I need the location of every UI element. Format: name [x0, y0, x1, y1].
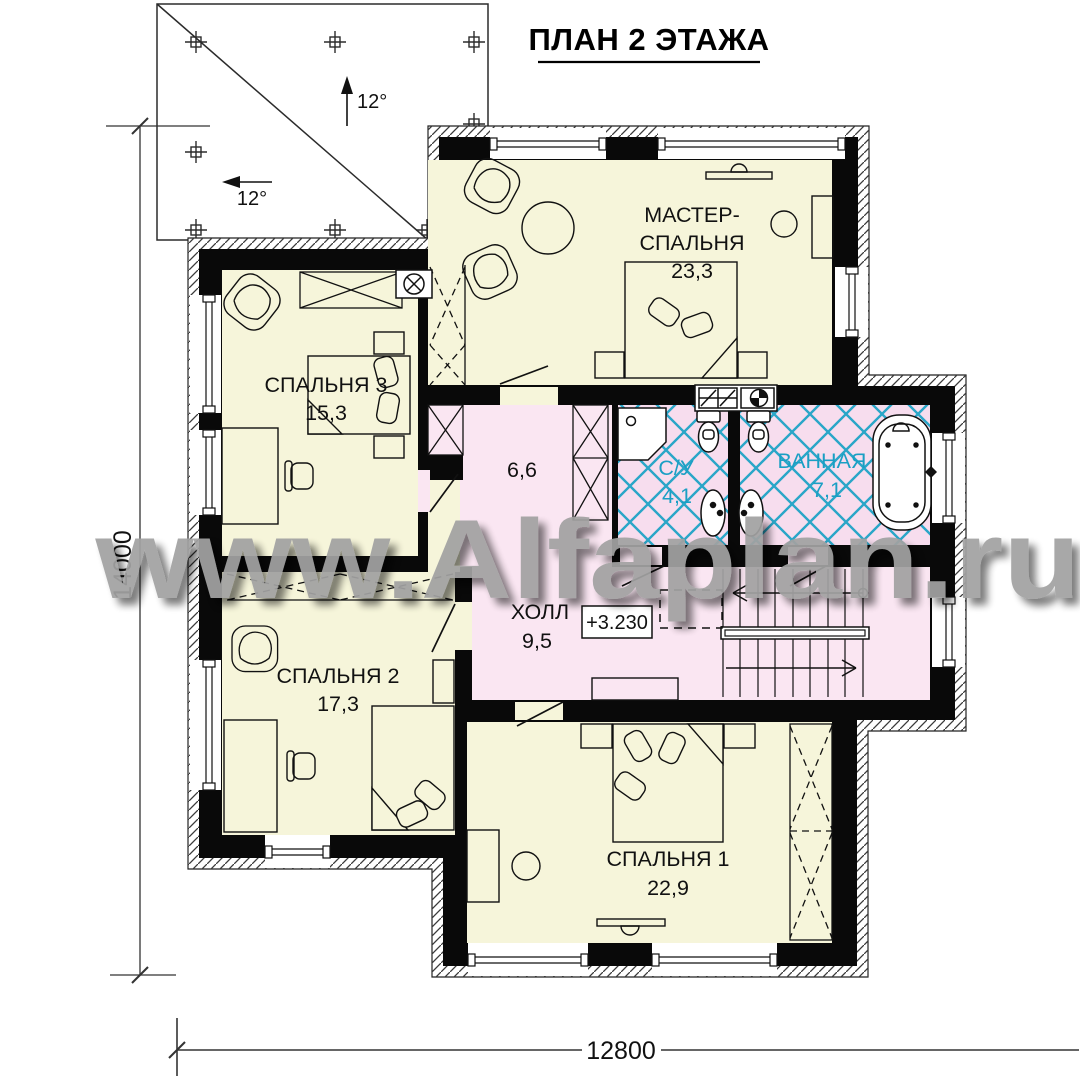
- roof-slope-arrow-up: [341, 76, 353, 126]
- drawing-title: ПЛАН 2 ЭТАЖА: [528, 22, 769, 62]
- floor-plan-page: 12° 12° 14000 12800: [0, 0, 1080, 1080]
- bedroom1-area: 22,9: [647, 876, 689, 900]
- roof-slope-label-left: 12°: [237, 188, 267, 210]
- roof-slope-label-up: 12°: [357, 91, 387, 113]
- master-door-opening: [500, 387, 558, 405]
- room-master-floor: [428, 160, 832, 385]
- master-area: 23,3: [671, 259, 713, 283]
- ventilation-shaft-icon: [695, 385, 777, 411]
- bedroom1-door-opening: [515, 702, 563, 720]
- master-label-line1: МАСТЕР-: [644, 203, 740, 227]
- stair-handrail: [721, 627, 869, 639]
- bedroom2-area: 17,3: [317, 692, 359, 716]
- bedroom1-label: СПАЛЬНЯ 1: [607, 847, 730, 871]
- roof-ridge-line: [157, 4, 428, 240]
- bedroom3-area: 15,3: [305, 401, 347, 425]
- toilet-icon: [747, 411, 770, 452]
- floor-plan-drawing: 12° 12° 14000 12800: [0, 0, 1080, 1080]
- bedroom2-label: СПАЛЬНЯ 2: [277, 664, 400, 688]
- wc-label: С/У: [658, 456, 694, 480]
- toilet-icon: [697, 411, 720, 452]
- bath-label: ВАННАЯ: [778, 449, 867, 473]
- corridor-area: 6,6: [507, 458, 537, 482]
- chimney-vent-icon: [396, 270, 432, 298]
- page-title: ПЛАН 2 ЭТАЖА: [528, 22, 769, 57]
- roof-slope-arrow-left: [222, 176, 272, 188]
- hall-area: 9,5: [522, 629, 552, 653]
- watermark: www.Alfaplan.ru: [94, 497, 1080, 622]
- master-label-line2: СПАЛЬНЯ: [639, 231, 744, 255]
- dimension-bottom: 12800: [169, 1018, 1079, 1076]
- bedroom3-label: СПАЛЬНЯ 3: [265, 373, 388, 397]
- dimension-width-label: 12800: [586, 1037, 656, 1065]
